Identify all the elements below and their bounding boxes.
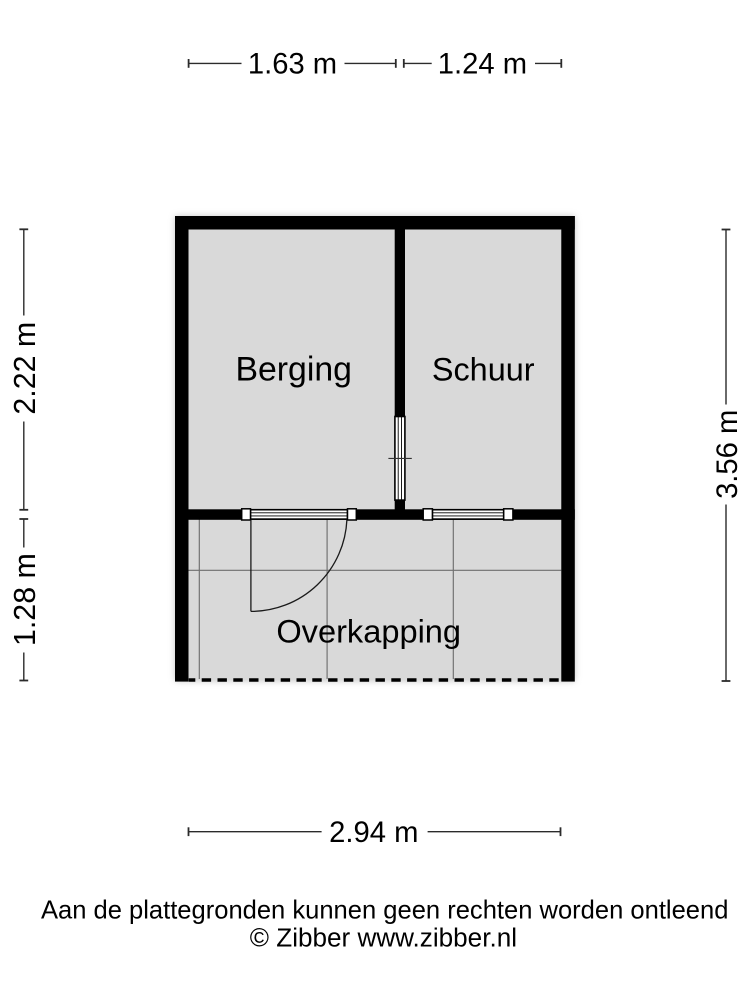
svg-text:© Zibber www.zibber.nl: © Zibber www.zibber.nl bbox=[250, 923, 517, 953]
svg-text:Overkapping: Overkapping bbox=[276, 613, 461, 650]
svg-text:Schuur: Schuur bbox=[432, 352, 535, 388]
svg-text:1.28 m: 1.28 m bbox=[8, 553, 42, 646]
svg-text:3.56 m: 3.56 m bbox=[712, 410, 744, 499]
svg-text:2.94 m: 2.94 m bbox=[329, 817, 418, 849]
svg-text:Aan de plattegronden kunnen ge: Aan de plattegronden kunnen geen rechten… bbox=[41, 896, 728, 924]
svg-text:2.22 m: 2.22 m bbox=[8, 322, 42, 415]
svg-text:Berging: Berging bbox=[235, 351, 352, 389]
svg-text:1.63 m: 1.63 m bbox=[248, 49, 337, 81]
svg-text:1.24 m: 1.24 m bbox=[438, 49, 527, 81]
